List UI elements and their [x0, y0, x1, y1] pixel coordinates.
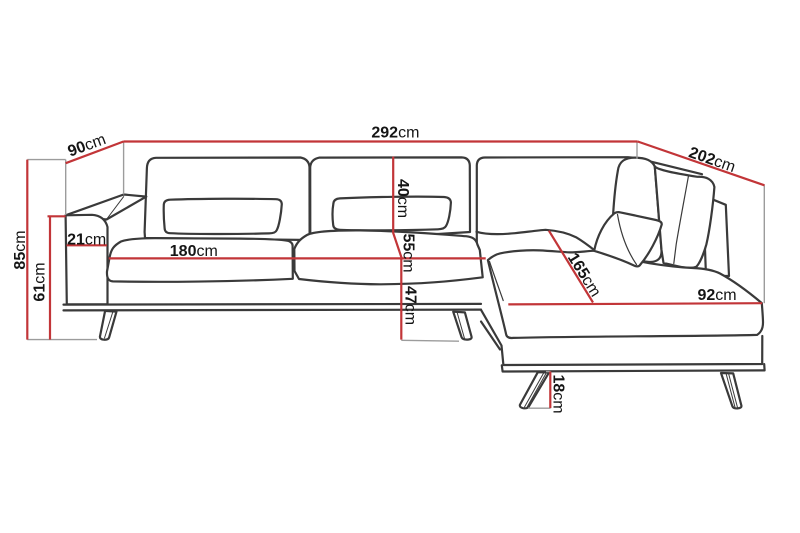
- svg-text:61cm: 61cm: [32, 262, 49, 301]
- svg-text:40cm: 40cm: [394, 179, 411, 218]
- svg-text:292cm: 292cm: [371, 125, 419, 142]
- svg-text:18cm: 18cm: [550, 374, 567, 413]
- svg-text:180cm: 180cm: [170, 243, 218, 260]
- svg-text:85cm: 85cm: [12, 230, 29, 269]
- svg-text:92cm: 92cm: [697, 287, 736, 304]
- svg-text:21cm: 21cm: [67, 231, 106, 248]
- svg-text:55cm: 55cm: [400, 233, 417, 272]
- svg-text:47cm: 47cm: [402, 286, 419, 325]
